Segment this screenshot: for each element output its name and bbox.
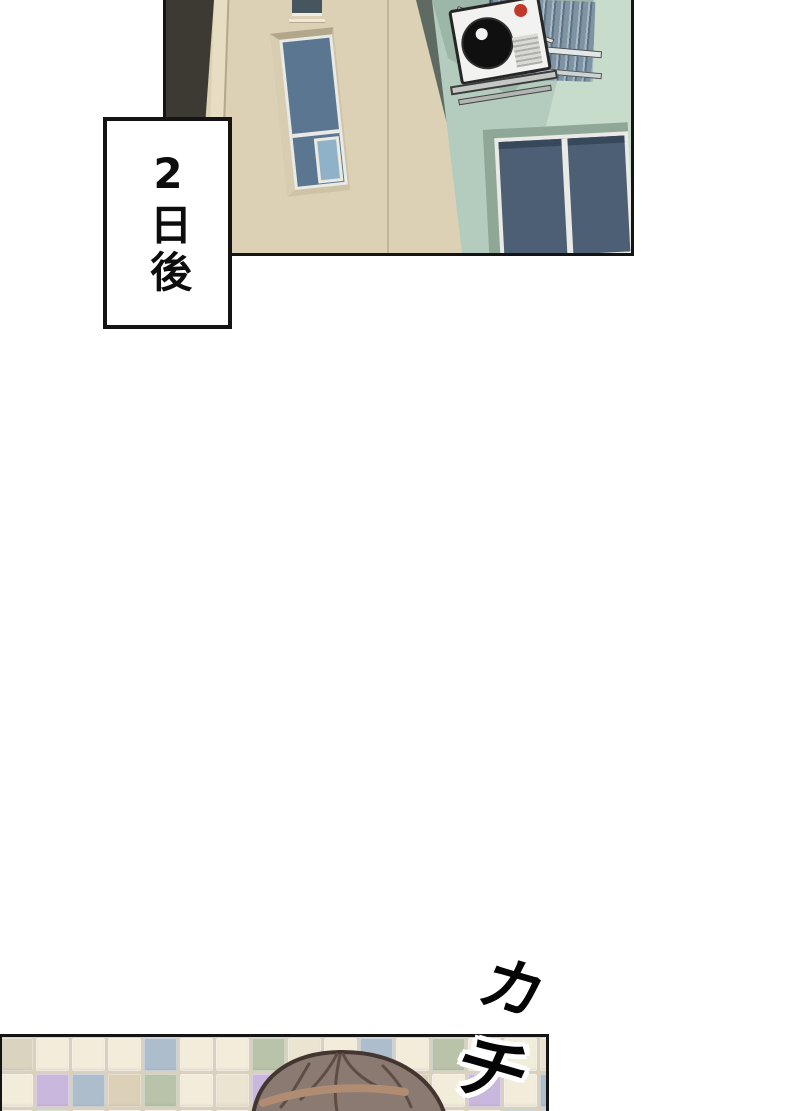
window-mint-frame: [494, 131, 634, 256]
caption-box: 2日後: [103, 117, 232, 329]
tile: [36, 1074, 69, 1107]
window-top-partial: [292, 0, 322, 16]
tile: [108, 1074, 141, 1107]
tile: [72, 1074, 105, 1107]
window-mint-building: [483, 122, 634, 256]
caption-text: 2日後: [147, 149, 189, 297]
tile: [144, 1074, 177, 1107]
tile: [0, 1074, 33, 1107]
tile: [144, 1038, 177, 1071]
tile: [540, 1074, 549, 1107]
window-main-open-sash: [313, 136, 343, 183]
facade-corner-seam: [387, 0, 389, 253]
tile: [180, 1038, 213, 1071]
ac-fan-icon: [457, 13, 517, 73]
character-head-hair: [251, 1049, 449, 1111]
window-mint-glass: [498, 135, 630, 256]
panel-building-exterior: [163, 0, 634, 256]
window-mint-mullion: [561, 138, 573, 254]
tile: [0, 1038, 33, 1071]
tile: [72, 1038, 105, 1071]
tile: [108, 1038, 141, 1071]
tile: [216, 1038, 249, 1071]
tile: [216, 1074, 249, 1107]
building-scene: [166, 0, 631, 253]
manga-page: 2日後 カ チ: [0, 0, 800, 1111]
ac-vent-grille: [512, 33, 543, 67]
tile: [36, 1038, 69, 1071]
window-top-sill: [289, 19, 325, 23]
ac-logo-badge: [513, 3, 528, 18]
window-main-glass: [283, 38, 345, 187]
tile: [180, 1074, 213, 1107]
